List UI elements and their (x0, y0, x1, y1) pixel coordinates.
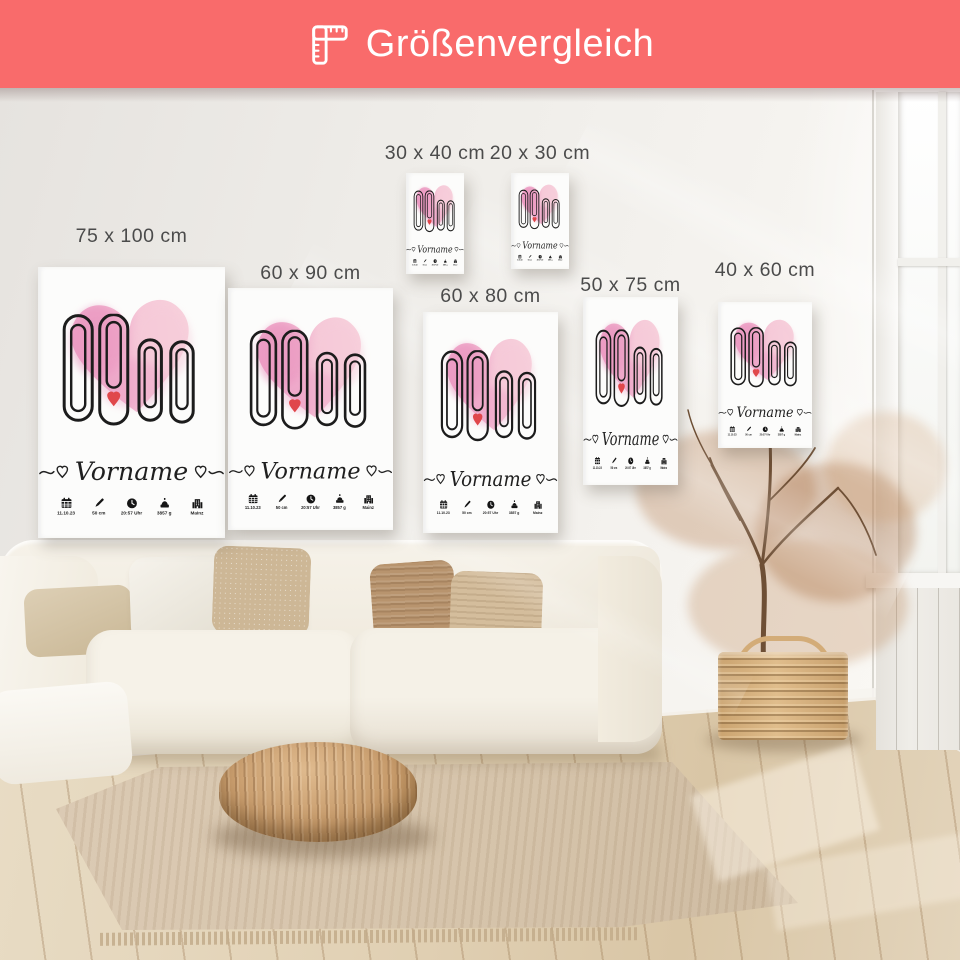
stat-time: 20:57 Uhr (479, 499, 502, 515)
poster-size-label: 40 x 60 cm (665, 259, 865, 282)
poster-name-text: Vorname (260, 458, 360, 484)
baby-name-row: Vorname (38, 456, 225, 488)
pencil-icon (462, 499, 471, 509)
paperclips-graphic (245, 330, 377, 433)
baby-name-row: Vorname (228, 457, 393, 485)
red-heart-accent (289, 399, 301, 412)
stat-weight-value: 3857 g (643, 466, 650, 470)
red-heart-accent (532, 217, 536, 222)
paperclips-graphic (727, 327, 802, 389)
stat-length: 50 cm (741, 426, 757, 436)
stat-weight-value: 3857 g (443, 264, 448, 266)
stat-weight: 3857 g (773, 426, 789, 436)
red-heart-accent (753, 369, 760, 377)
clock-icon (538, 254, 542, 258)
poster-name-text: Vorname (450, 467, 532, 491)
stat-place-value: Mainz (795, 433, 802, 436)
scale-icon (778, 426, 784, 433)
heart-swash-right-icon (364, 462, 392, 480)
stat-weight-value: 3857 g (333, 505, 346, 510)
birth-stats-row: 11.10.23 50 cm 20:57 Uhr (406, 259, 464, 266)
heart-swash-right-icon (534, 471, 557, 488)
calendar-icon (729, 426, 735, 433)
calendar-icon (594, 456, 600, 464)
pencil-icon (528, 254, 532, 258)
heart-swash-left-icon (229, 462, 257, 480)
stat-date: 11.10.23 (239, 493, 267, 510)
stat-weight: 3857 g (148, 497, 180, 516)
stat-time-value: 20:57 Uhr (760, 433, 771, 436)
wicker-pouf (219, 742, 417, 842)
poster-canvas: Vorname 11.10.23 (583, 297, 678, 485)
poster-name-text: Vorname (602, 429, 660, 449)
poster-name-text: Vorname (417, 244, 452, 255)
stat-time-value: 20:57 Uhr (432, 264, 439, 266)
baby-name-row: Vorname (718, 404, 812, 421)
stat-place-value: Mainz (533, 511, 542, 516)
red-heart-accent (427, 219, 431, 224)
poster-size-label: 75 x 100 cm (32, 225, 232, 248)
stat-weight: 3857 g (440, 259, 450, 266)
stat-length-value: 50 cm (745, 433, 752, 436)
poster-art: Vorname 11.10.23 (228, 288, 393, 530)
clock-icon (305, 493, 316, 504)
poster-name-text: Vorname (737, 404, 794, 420)
stat-weight-value: 3857 g (509, 511, 520, 516)
sofa-throw-blanket (0, 680, 134, 786)
scale-icon (548, 254, 552, 258)
heart-swash-right-icon (661, 432, 677, 446)
poster-art: Vorname 11.10.23 (38, 267, 225, 538)
baby-name-row: Vorname (583, 428, 678, 450)
stat-length-value: 50 cm (276, 505, 288, 510)
stat-place-value: Mainz (453, 264, 457, 266)
poster-canvas: Vorname 11.10.23 (423, 312, 558, 533)
stat-place: Mainz (354, 493, 382, 510)
heart-swash-left-icon (511, 242, 521, 249)
stat-length-value: 50 cm (92, 510, 105, 516)
red-heart-accent (473, 414, 482, 426)
poster-art: Vorname 11.10.23 (423, 312, 558, 533)
poster-canvas: Vorname 11.10.23 (406, 173, 464, 274)
poster-canvas: Vorname 11.10.23 (718, 302, 812, 448)
scale-icon (334, 493, 345, 504)
stat-weight: 3857 g (639, 456, 655, 469)
heart-swash-left-icon (406, 245, 416, 253)
stat-date-value: 11.10.23 (57, 510, 75, 516)
building-icon (363, 493, 374, 504)
scale-icon (158, 497, 170, 509)
stat-place: Mainz (450, 259, 460, 266)
stat-length: 50 cm (525, 254, 535, 261)
stat-time: 20:57 Uhr (296, 493, 324, 510)
red-heart-accent (618, 383, 625, 393)
baby-name-row: Vorname (511, 240, 569, 251)
calendar-icon (413, 259, 417, 264)
clock-icon (486, 499, 495, 509)
paperclips-graphic (593, 329, 669, 409)
birth-stats-row: 11.10.23 50 cm 20:57 Uhr (228, 493, 393, 510)
corner-ruler-icon (306, 21, 352, 67)
paperclips-graphic (57, 314, 207, 430)
stat-date-value: 11.10.23 (593, 466, 602, 470)
calendar-icon (439, 499, 448, 509)
stat-length: 50 cm (83, 497, 115, 516)
wicker-basket (718, 652, 848, 740)
stat-time: 20:57 Uhr (622, 456, 638, 469)
stat-length-value: 50 cm (423, 264, 427, 266)
poster-canvas: Vorname 11.10.23 (228, 288, 393, 530)
scale-icon (644, 456, 650, 464)
window-mullion (938, 92, 946, 574)
calendar-icon (60, 497, 72, 509)
paperclips-graphic (437, 350, 545, 444)
stat-place-value: Mainz (190, 510, 203, 516)
stat-time-value: 20:57 Uhr (625, 466, 636, 470)
banner-title: Größenvergleich (366, 23, 654, 66)
poster-art: Vorname 11.10.23 (511, 173, 569, 269)
stat-place-value: Mainz (660, 466, 667, 470)
pencil-icon (423, 259, 427, 264)
stat-time-value: 20:57 Uhr (301, 505, 320, 510)
heart-swash-left-icon (719, 407, 735, 418)
stat-date-value: 11.10.23 (437, 511, 450, 516)
red-heart-accent (107, 392, 120, 407)
stat-date: 11.10.23 (724, 426, 740, 436)
stat-place: Mainz (526, 499, 549, 515)
stat-length-value: 50 cm (611, 466, 618, 470)
birth-stats-row: 11.10.23 50 cm 20:57 Uhr (511, 254, 569, 261)
stat-date: 11.10.23 (410, 259, 420, 266)
calendar-icon (247, 493, 258, 504)
poster-canvas: Vorname 11.10.23 (38, 267, 225, 538)
poster-size-label: 60 x 90 cm (211, 262, 411, 285)
poster-art: Vorname 11.10.23 (583, 297, 678, 485)
stat-date: 11.10.23 (515, 254, 525, 261)
poster-art: Vorname 11.10.23 (406, 173, 464, 274)
heart-swash-right-icon (795, 407, 811, 418)
paperclips-graphic (412, 190, 458, 233)
stat-time-value: 20:57 Uhr (537, 259, 544, 261)
stat-time-value: 20:57 Uhr (483, 511, 498, 516)
stat-weight: 3857 g (325, 493, 353, 510)
building-icon (533, 499, 542, 509)
heart-swash-right-icon (454, 245, 464, 253)
baby-name-row: Vorname (423, 466, 558, 492)
stat-place: Mainz (181, 497, 213, 516)
heart-swash-left-icon (584, 432, 600, 446)
baby-name-row: Vorname (406, 243, 464, 255)
stat-date: 11.10.23 (432, 499, 455, 515)
stat-weight-value: 3857 g (778, 433, 785, 436)
clock-icon (762, 426, 768, 433)
stat-length: 50 cm (420, 259, 430, 266)
scale-icon (510, 499, 519, 509)
paperclips-graphic (517, 190, 563, 231)
poster-art: Vorname 11.10.23 (718, 302, 812, 448)
stat-place-value: Mainz (363, 505, 374, 510)
window-sash-bar (898, 258, 960, 266)
stat-time: 20:57 Uhr (116, 497, 148, 516)
stat-place: Mainz (555, 254, 565, 261)
stat-date: 11.10.23 (589, 456, 605, 469)
stat-length: 50 cm (606, 456, 622, 469)
scale-icon (443, 259, 447, 264)
pencil-icon (93, 497, 105, 509)
stat-length-value: 50 cm (462, 511, 472, 516)
poster-name-text: Vorname (522, 240, 557, 250)
poster-canvas: Vorname 11.10.23 (511, 173, 569, 269)
stat-date-value: 11.10.23 (517, 259, 523, 261)
stat-length-value: 50 cm (528, 259, 532, 261)
stat-date: 11.10.23 (50, 497, 82, 516)
stat-weight: 3857 g (545, 254, 555, 261)
pencil-icon (276, 493, 287, 504)
stat-place: Mainz (790, 426, 806, 436)
birth-stats-row: 11.10.23 50 cm 20:57 Uhr (423, 499, 558, 515)
stat-time-value: 20:57 Uhr (121, 510, 142, 516)
poster-size-label: 20 x 30 cm (440, 142, 640, 165)
pillow-speckled (211, 545, 311, 636)
building-icon (661, 456, 667, 464)
stat-time: 20:57 Uhr (535, 254, 545, 261)
pencil-icon (611, 456, 617, 464)
building-icon (558, 254, 562, 258)
birth-stats-row: 11.10.23 50 cm 20:57 Uhr (583, 456, 678, 469)
building-icon (191, 497, 203, 509)
stat-date-value: 11.10.23 (728, 433, 737, 436)
stat-time: 20:57 Uhr (430, 259, 440, 266)
stat-date-value: 11.10.23 (245, 505, 261, 510)
heart-swash-left-icon (424, 471, 447, 488)
stat-place-value: Mainz (558, 259, 562, 261)
heart-swash-left-icon (39, 461, 71, 482)
birth-stats-row: 11.10.23 50 cm 20:57 Uhr (718, 426, 812, 436)
poster-name-text: Vorname (75, 457, 188, 486)
stat-length: 50 cm (455, 499, 478, 515)
building-icon (453, 259, 457, 264)
calendar-icon (518, 254, 522, 258)
clock-icon (627, 456, 633, 464)
pencil-icon (745, 426, 751, 433)
stat-weight-value: 3857 g (157, 510, 172, 516)
stat-length: 50 cm (268, 493, 296, 510)
birth-stats-row: 11.10.23 50 cm 20:57 Uhr (38, 497, 225, 516)
size-comparison-product-image: 75 x 100 cm (0, 0, 960, 960)
clock-icon (125, 497, 137, 509)
stat-place: Mainz (656, 456, 672, 469)
header-banner: Größenvergleich (0, 0, 960, 88)
stat-weight: 3857 g (503, 499, 526, 515)
banner-shadow (0, 88, 960, 102)
heart-swash-right-icon (559, 242, 569, 249)
stat-weight-value: 3857 g (548, 259, 553, 261)
building-icon (795, 426, 801, 433)
stat-time: 20:57 Uhr (757, 426, 773, 436)
stat-date-value: 11.10.23 (412, 264, 418, 266)
clock-icon (433, 259, 437, 264)
heart-swash-right-icon (192, 461, 224, 482)
